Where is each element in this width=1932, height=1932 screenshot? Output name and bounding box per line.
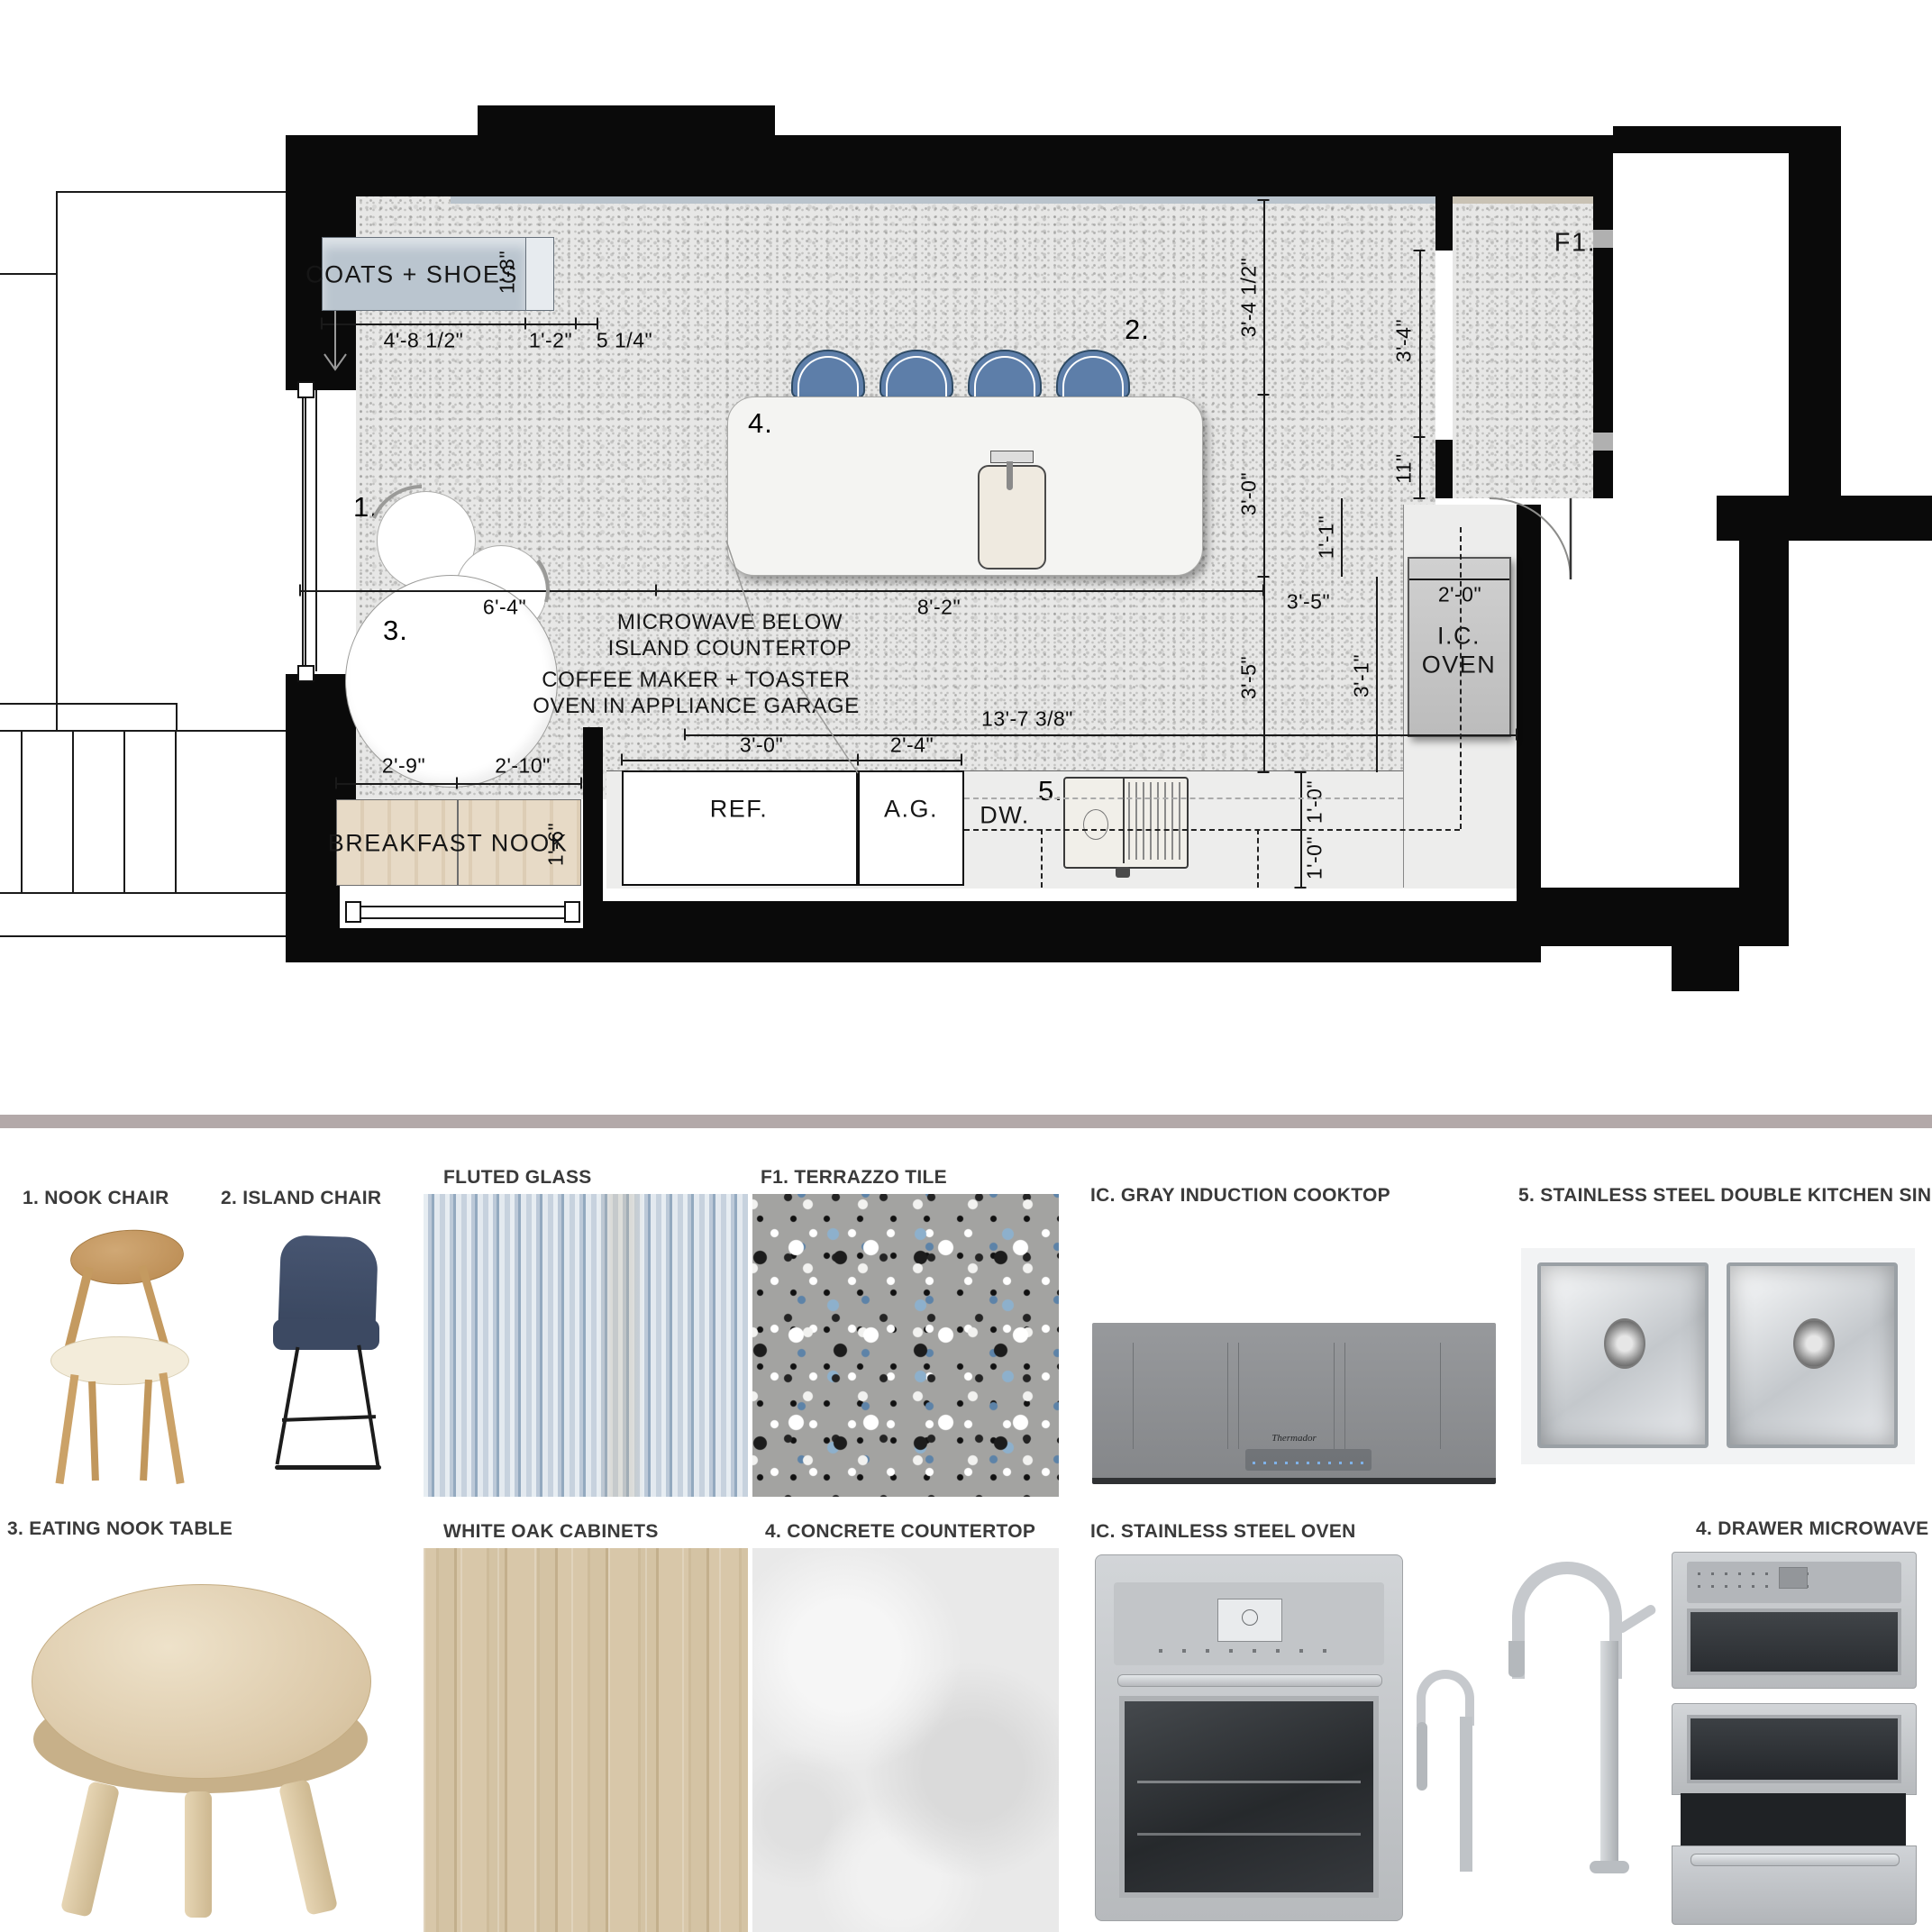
chair-leg bbox=[159, 1372, 184, 1484]
faucet-image bbox=[1415, 1554, 1658, 1932]
oven-door-glass bbox=[1119, 1696, 1379, 1898]
oven-rack-line bbox=[1137, 1781, 1361, 1783]
oven-handle bbox=[1117, 1674, 1382, 1687]
faucet-body bbox=[1600, 1641, 1618, 1864]
kitchen-plan-and-moodboard: COATS + SHOES 1'-3" 4'-8 1/2" 1'-2" 5 1/… bbox=[0, 0, 1932, 1932]
oven-clock-icon bbox=[1242, 1609, 1258, 1626]
oven-rack-line bbox=[1137, 1833, 1361, 1836]
stool-leg bbox=[357, 1345, 380, 1469]
table-leg bbox=[278, 1779, 338, 1916]
plan-annotation-lines bbox=[0, 0, 1932, 1115]
board-label-sink: 5. STAINLESS STEEL DOUBLE KITCHEN SINK bbox=[1518, 1185, 1932, 1207]
concrete-countertop-image bbox=[752, 1548, 1059, 1932]
sink-drain-icon bbox=[1793, 1318, 1835, 1369]
microwave-drawer-handle bbox=[1690, 1854, 1900, 1866]
board-label-cooktop: IC. GRAY INDUCTION COOKTOP bbox=[1090, 1185, 1390, 1207]
microwave-open-cavity bbox=[1681, 1793, 1906, 1845]
island-chair-image bbox=[230, 1236, 419, 1498]
nook-table-image bbox=[23, 1550, 378, 1919]
board-label-fluted-glass: FLUTED GLASS bbox=[443, 1167, 592, 1189]
faucet-base bbox=[1590, 1861, 1629, 1873]
oven-image bbox=[1095, 1554, 1403, 1921]
table-leg bbox=[60, 1781, 120, 1918]
gooseneck-spout bbox=[1508, 1641, 1525, 1677]
cooktop-brand: Thermador bbox=[1092, 1433, 1496, 1444]
chair-leg bbox=[88, 1381, 99, 1481]
section-divider bbox=[0, 1115, 1932, 1128]
sink-drain-icon bbox=[1604, 1318, 1645, 1369]
stool-footrest bbox=[282, 1415, 376, 1422]
microwave-image-open bbox=[1672, 1703, 1915, 1932]
cooktop-controls-icon bbox=[1245, 1449, 1372, 1471]
stool-base bbox=[275, 1465, 381, 1470]
stool-seat bbox=[273, 1319, 379, 1350]
board-label-nook-table: 3. EATING NOOK TABLE bbox=[7, 1518, 232, 1540]
nook-chair-image bbox=[27, 1230, 207, 1500]
microwave-top-unit bbox=[1672, 1703, 1917, 1795]
board-label-oven: IC. STAINLESS STEEL OVEN bbox=[1090, 1521, 1356, 1543]
sink-image bbox=[1521, 1248, 1915, 1464]
cooktop-image: Thermador bbox=[1092, 1323, 1496, 1484]
table-leg bbox=[185, 1791, 212, 1918]
chair-leg bbox=[56, 1374, 79, 1484]
chair-leg bbox=[140, 1380, 152, 1481]
oak-cabinets-image bbox=[424, 1548, 748, 1932]
small-faucet-body bbox=[1460, 1717, 1472, 1872]
board-label-nook-chair: 1. NOOK CHAIR bbox=[23, 1188, 169, 1209]
board-label-oak-cabinets: WHITE OAK CABINETS bbox=[443, 1521, 659, 1543]
board-label-terrazzo-tile: F1. TERRAZZO TILE bbox=[761, 1167, 947, 1189]
fluted-glass-image bbox=[424, 1194, 748, 1497]
board-label-microwave: 4. DRAWER MICROWAVE bbox=[1696, 1518, 1929, 1540]
table-top bbox=[32, 1584, 371, 1779]
side-sprayer bbox=[1417, 1722, 1427, 1791]
microwave-window bbox=[1687, 1608, 1901, 1675]
board-label-concrete: 4. CONCRETE COUNTERTOP bbox=[765, 1521, 1035, 1543]
microwave-drawer-front bbox=[1672, 1845, 1917, 1925]
terrazzo-tile-image bbox=[752, 1194, 1059, 1497]
microwave-image-closed bbox=[1672, 1552, 1917, 1689]
board-label-island-chair: 2. ISLAND CHAIR bbox=[221, 1188, 381, 1209]
microwave-window bbox=[1687, 1715, 1901, 1783]
stool-leg bbox=[276, 1347, 300, 1465]
microwave-display bbox=[1779, 1567, 1808, 1589]
oven-buttons bbox=[1159, 1649, 1339, 1653]
